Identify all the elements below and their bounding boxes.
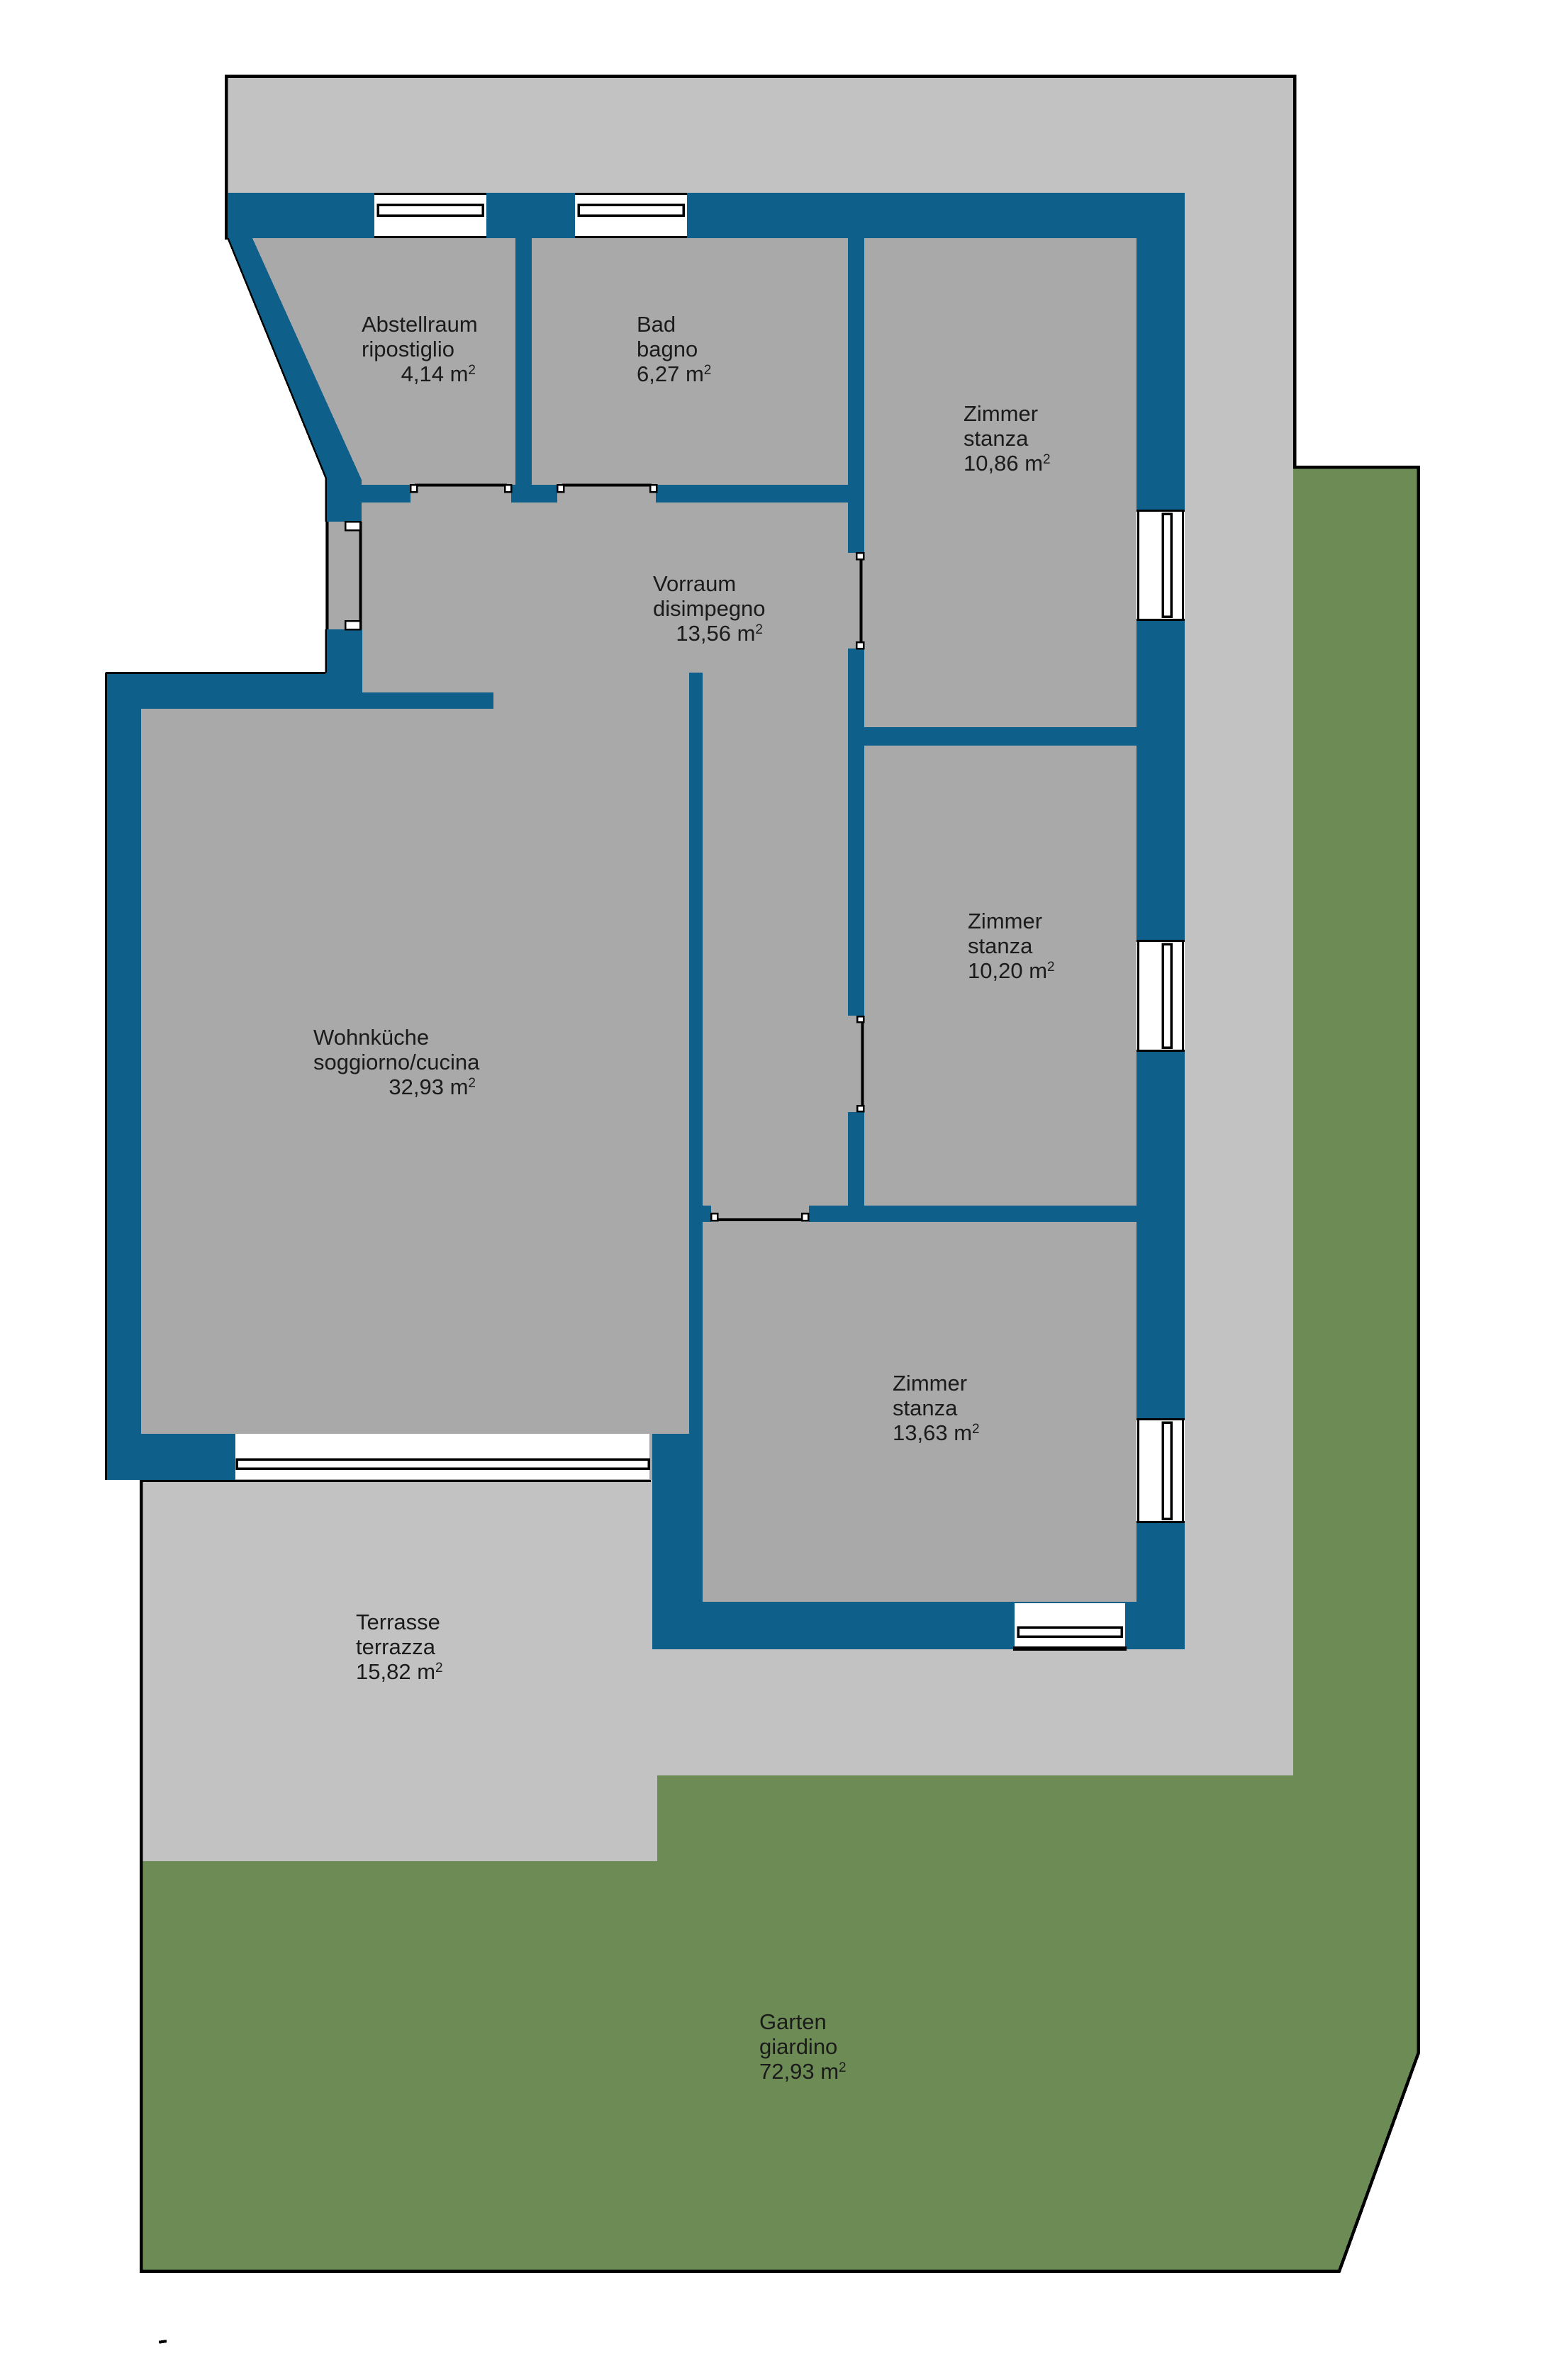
svg-text:13,56 m2: 13,56 m2 bbox=[676, 621, 763, 646]
svg-text:Terrasse: Terrasse bbox=[356, 1610, 440, 1634]
svg-text:Wohnküche: Wohnküche bbox=[313, 1025, 429, 1050]
svg-text:10,20 m2: 10,20 m2 bbox=[968, 958, 1055, 983]
svg-text:Zimmer: Zimmer bbox=[893, 1371, 967, 1396]
svg-text:15,82 m2: 15,82 m2 bbox=[356, 1659, 443, 1684]
svg-text:giardino: giardino bbox=[759, 2034, 837, 2059]
svg-text:13,63 m2: 13,63 m2 bbox=[893, 1420, 980, 1445]
svg-text:Zimmer: Zimmer bbox=[968, 909, 1042, 933]
svg-text:stanza: stanza bbox=[893, 1396, 958, 1420]
svg-text:10,86 m2: 10,86 m2 bbox=[964, 451, 1051, 476]
svg-text:32,93 m2: 32,93 m2 bbox=[389, 1074, 476, 1099]
svg-text:Zimmer: Zimmer bbox=[964, 401, 1038, 426]
svg-text:bagno: bagno bbox=[637, 337, 698, 361]
svg-text:Abstellraum: Abstellraum bbox=[362, 312, 478, 337]
svg-text:Garten: Garten bbox=[759, 2009, 827, 2034]
svg-text:ripostiglio: ripostiglio bbox=[362, 337, 454, 361]
svg-text:72,93 m2: 72,93 m2 bbox=[759, 2059, 847, 2084]
svg-text:Vorraum: Vorraum bbox=[653, 571, 736, 596]
svg-text:terrazza: terrazza bbox=[356, 1634, 436, 1659]
svg-text:stanza: stanza bbox=[968, 933, 1033, 958]
svg-text:soggiorno/cucina: soggiorno/cucina bbox=[313, 1050, 480, 1074]
svg-text:6,27 m2: 6,27 m2 bbox=[637, 361, 711, 386]
svg-text:Bad: Bad bbox=[637, 312, 676, 337]
svg-text:4,14 m2: 4,14 m2 bbox=[401, 361, 476, 386]
svg-text:disimpegno: disimpegno bbox=[653, 596, 766, 621]
svg-text:stanza: stanza bbox=[964, 426, 1029, 451]
